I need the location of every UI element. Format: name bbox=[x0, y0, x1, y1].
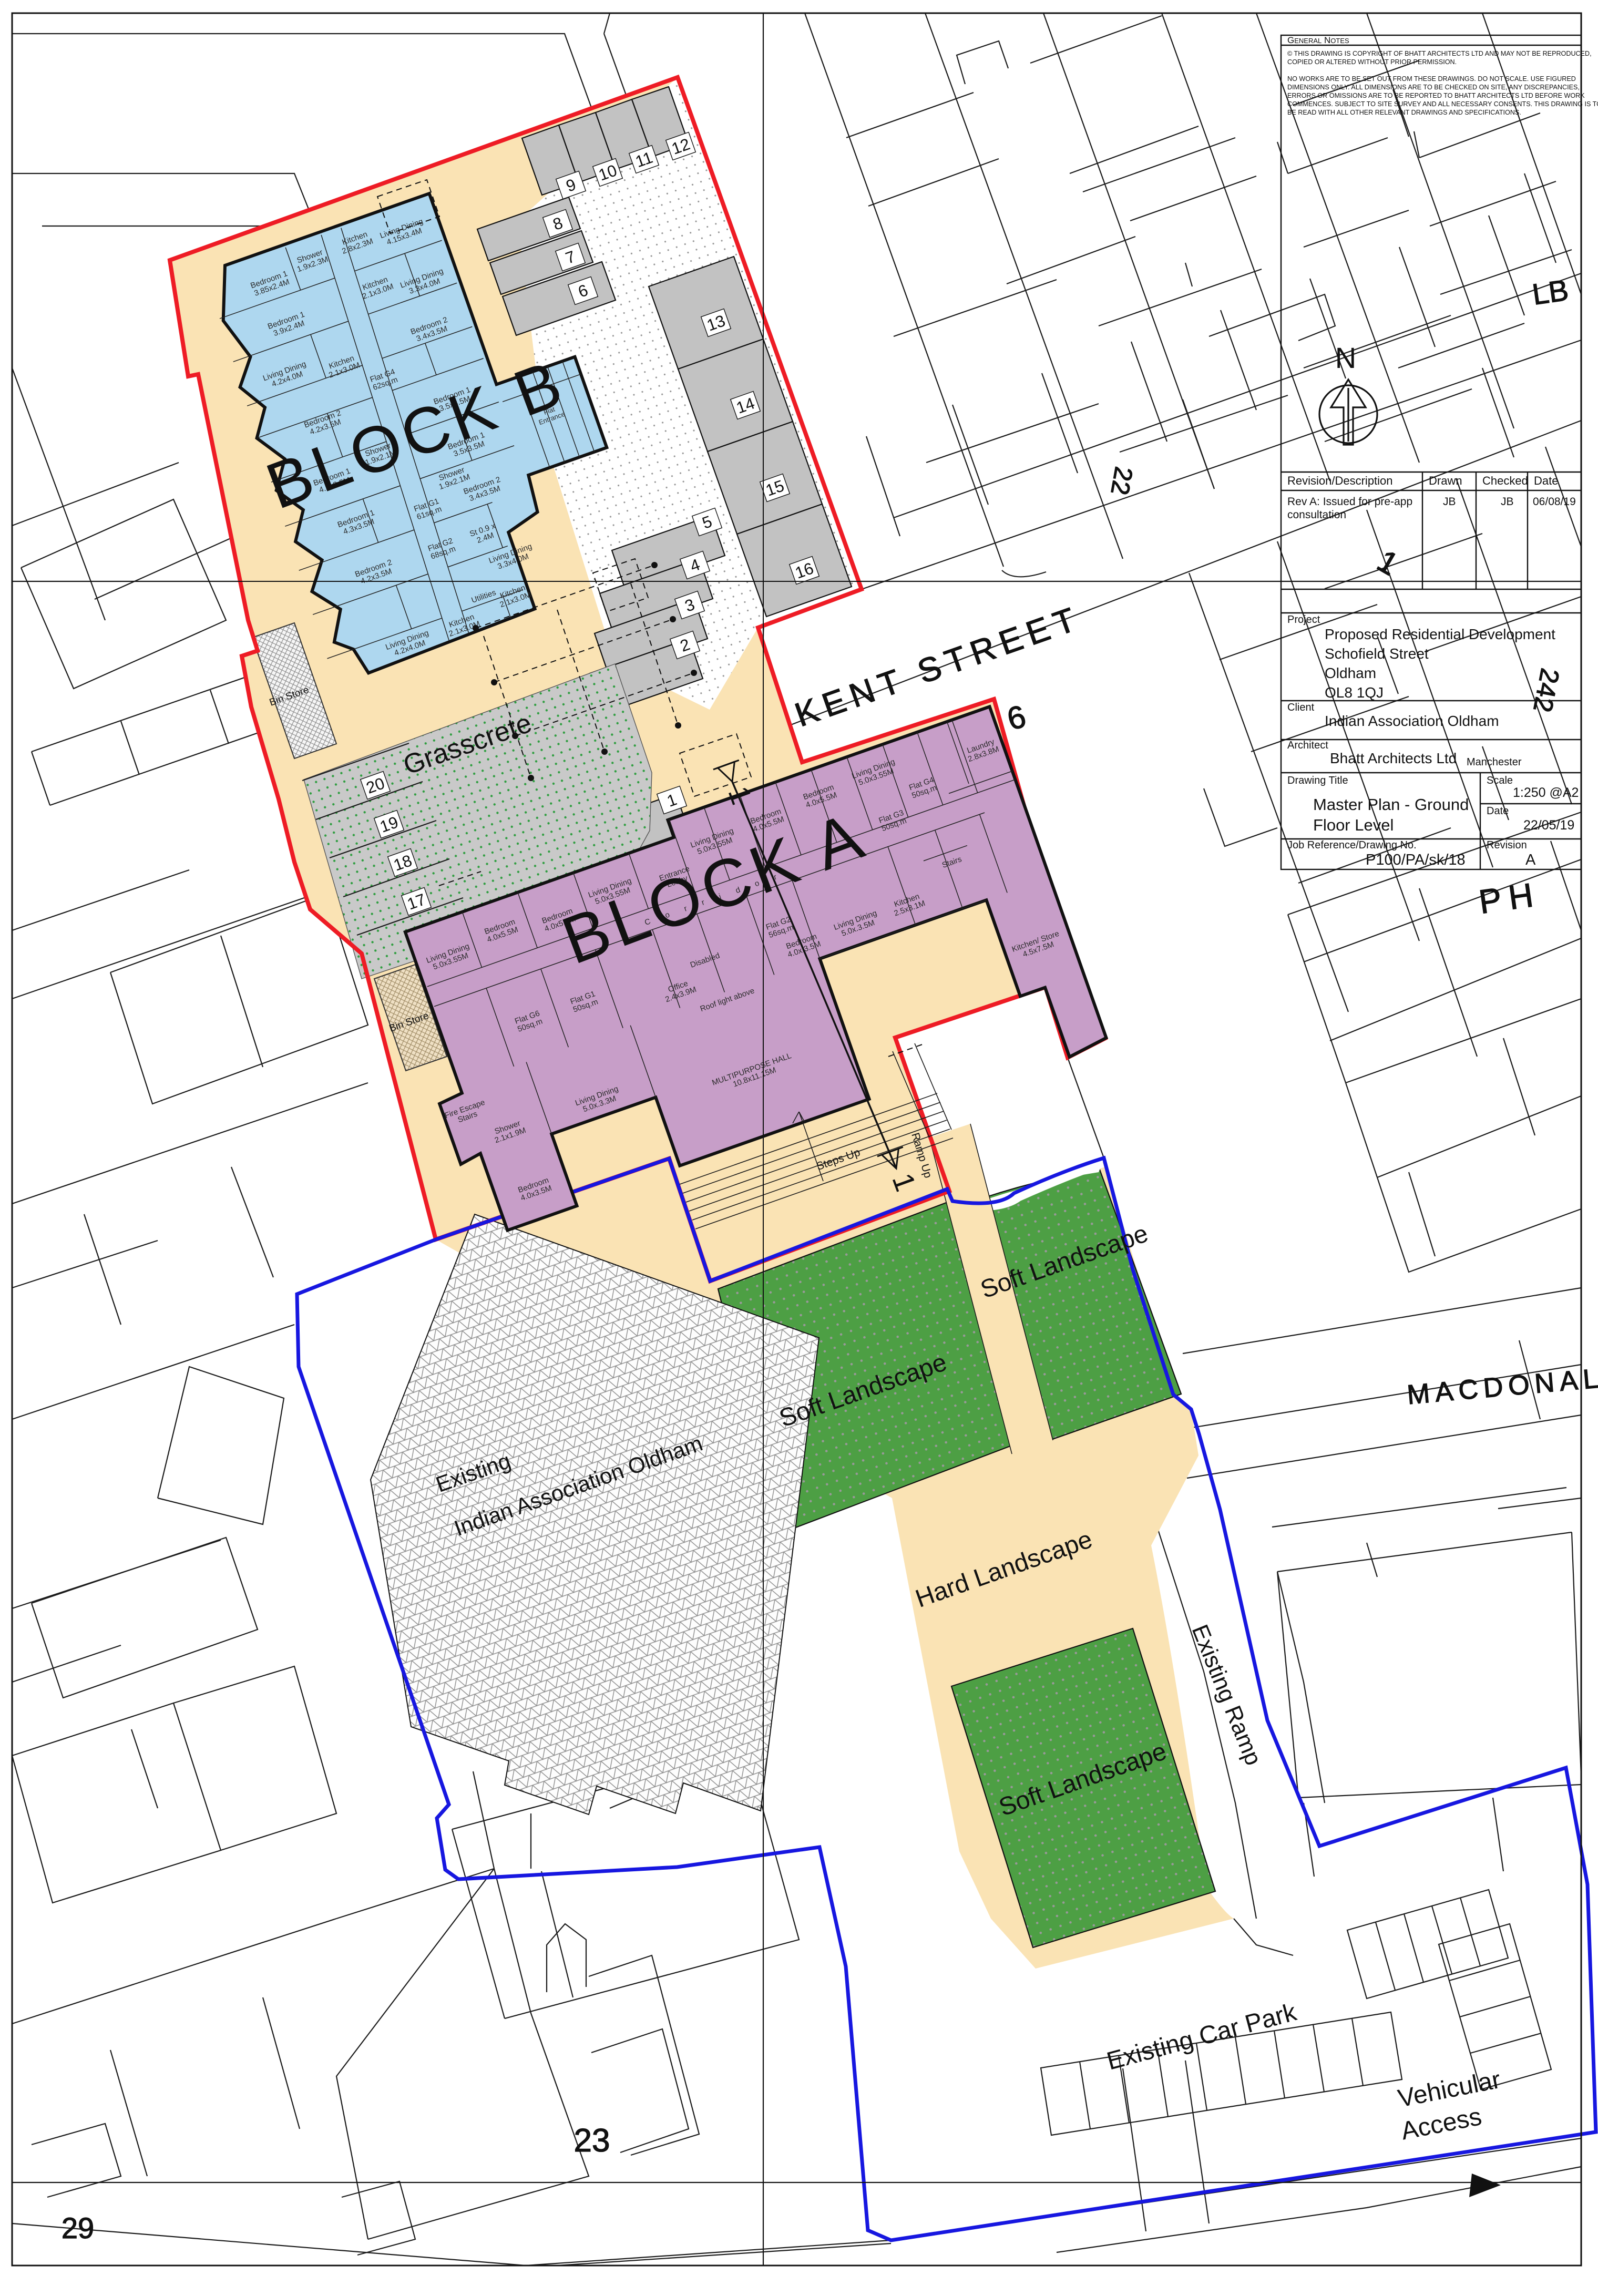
svg-text:Bhatt Architects Ltd: Bhatt Architects Ltd bbox=[1330, 750, 1457, 766]
svg-text:Rev A: Issued for pre-app: Rev A: Issued for pre-app bbox=[1287, 496, 1412, 508]
svg-text:22: 22 bbox=[1105, 465, 1138, 497]
svg-text:Manchester: Manchester bbox=[1467, 756, 1522, 768]
svg-text:Checked: Checked bbox=[1482, 474, 1528, 487]
svg-text:Project: Project bbox=[1287, 614, 1320, 626]
svg-text:OL8 1QJ: OL8 1QJ bbox=[1325, 684, 1384, 701]
svg-text:Client: Client bbox=[1287, 702, 1315, 713]
svg-text:© THIS DRAWING IS COPYRIGHT OF: © THIS DRAWING IS COPYRIGHT OF BHATT ARC… bbox=[1287, 50, 1592, 57]
svg-text:BE READ WITH ALL OTHER RELEVAN: BE READ WITH ALL OTHER RELEVANT DRAWINGS… bbox=[1287, 109, 1521, 116]
svg-text:Drawn: Drawn bbox=[1429, 474, 1462, 487]
svg-text:COMMENCES. SUBJECT TO SITE SUR: COMMENCES. SUBJECT TO SITE SURVEY AND AL… bbox=[1287, 100, 1598, 108]
svg-text:P100/PA/sk/18: P100/PA/sk/18 bbox=[1366, 852, 1466, 868]
svg-text:Revision: Revision bbox=[1487, 839, 1527, 851]
svg-text:Floor Level: Floor Level bbox=[1313, 816, 1394, 834]
svg-text:1:250 @A2: 1:250 @A2 bbox=[1513, 785, 1579, 800]
svg-text:Proposed Residential Developme: Proposed Residential Development bbox=[1325, 626, 1555, 642]
svg-text:Date: Date bbox=[1487, 805, 1509, 817]
svg-text:29: 29 bbox=[62, 2211, 94, 2244]
svg-text:06/08/19: 06/08/19 bbox=[1533, 496, 1576, 508]
svg-text:GENERAL NOTES: GENERAL NOTES bbox=[1287, 35, 1349, 45]
svg-text:22/05/19: 22/05/19 bbox=[1523, 818, 1574, 833]
svg-text:Indian Association Oldham: Indian Association Oldham bbox=[1325, 713, 1499, 729]
svg-text:A: A bbox=[1525, 852, 1536, 868]
svg-text:Oldham: Oldham bbox=[1325, 665, 1376, 681]
svg-text:N: N bbox=[1335, 341, 1356, 374]
svg-text:JB: JB bbox=[1501, 496, 1514, 508]
svg-text:COPIED OR ALTERED WITHOUT PRIO: COPIED OR ALTERED WITHOUT PRIOR PERMISSI… bbox=[1287, 58, 1457, 66]
svg-text:Master Plan - Ground: Master Plan - Ground bbox=[1313, 795, 1469, 814]
svg-text:LB: LB bbox=[1530, 273, 1571, 311]
svg-text:Job Reference/Drawing No.: Job Reference/Drawing No. bbox=[1287, 839, 1417, 851]
svg-text:Date: Date bbox=[1534, 474, 1558, 487]
svg-text:DIMENSIONS ONLY. ALL DIMENSION: DIMENSIONS ONLY. ALL DIMENSIONS ARE TO B… bbox=[1287, 84, 1580, 91]
svg-text:23: 23 bbox=[574, 2123, 610, 2159]
svg-text:Architect: Architect bbox=[1287, 740, 1328, 751]
svg-text:Scale: Scale bbox=[1487, 775, 1513, 786]
svg-text:consultation: consultation bbox=[1287, 509, 1346, 521]
svg-text:Schofield Street: Schofield Street bbox=[1325, 645, 1429, 662]
svg-text:ERRORS OR OMISSIONS ARE TO BE: ERRORS OR OMISSIONS ARE TO BE REPORTED T… bbox=[1287, 92, 1585, 99]
svg-text:Drawing Title: Drawing Title bbox=[1287, 775, 1348, 786]
svg-text:Revision/Description: Revision/Description bbox=[1287, 474, 1393, 487]
svg-text:NO WORKS ARE TO BE SET OUT FRO: NO WORKS ARE TO BE SET OUT FROM THESE DR… bbox=[1287, 75, 1576, 83]
svg-text:JB: JB bbox=[1443, 496, 1456, 508]
